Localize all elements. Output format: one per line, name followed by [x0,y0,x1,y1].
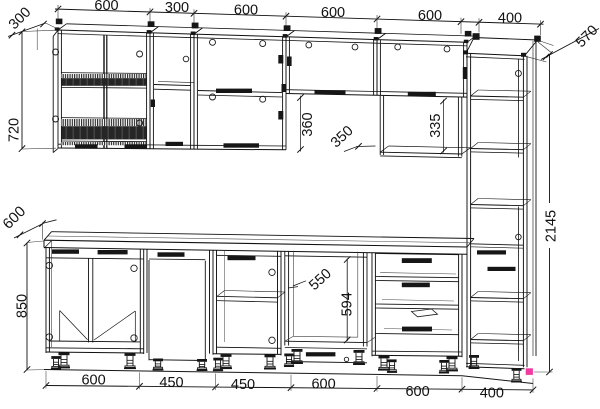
svg-text:400: 400 [480,386,504,402]
svg-text:335: 335 [428,114,444,138]
svg-text:600: 600 [234,2,258,18]
svg-text:850: 850 [15,294,31,318]
svg-text:600: 600 [311,377,335,393]
svg-text:2145: 2145 [544,210,560,242]
svg-text:720: 720 [7,118,23,142]
svg-text:600: 600 [418,8,442,24]
svg-text:450: 450 [159,375,183,391]
svg-text:600: 600 [81,372,105,388]
svg-text:300: 300 [165,0,189,16]
svg-text:594: 594 [340,292,356,316]
svg-text:400: 400 [498,11,522,27]
svg-text:360: 360 [300,112,316,136]
svg-text:600: 600 [405,384,429,400]
svg-text:600: 600 [321,5,345,21]
svg-text:600: 600 [94,0,118,14]
svg-text:450: 450 [231,377,255,393]
